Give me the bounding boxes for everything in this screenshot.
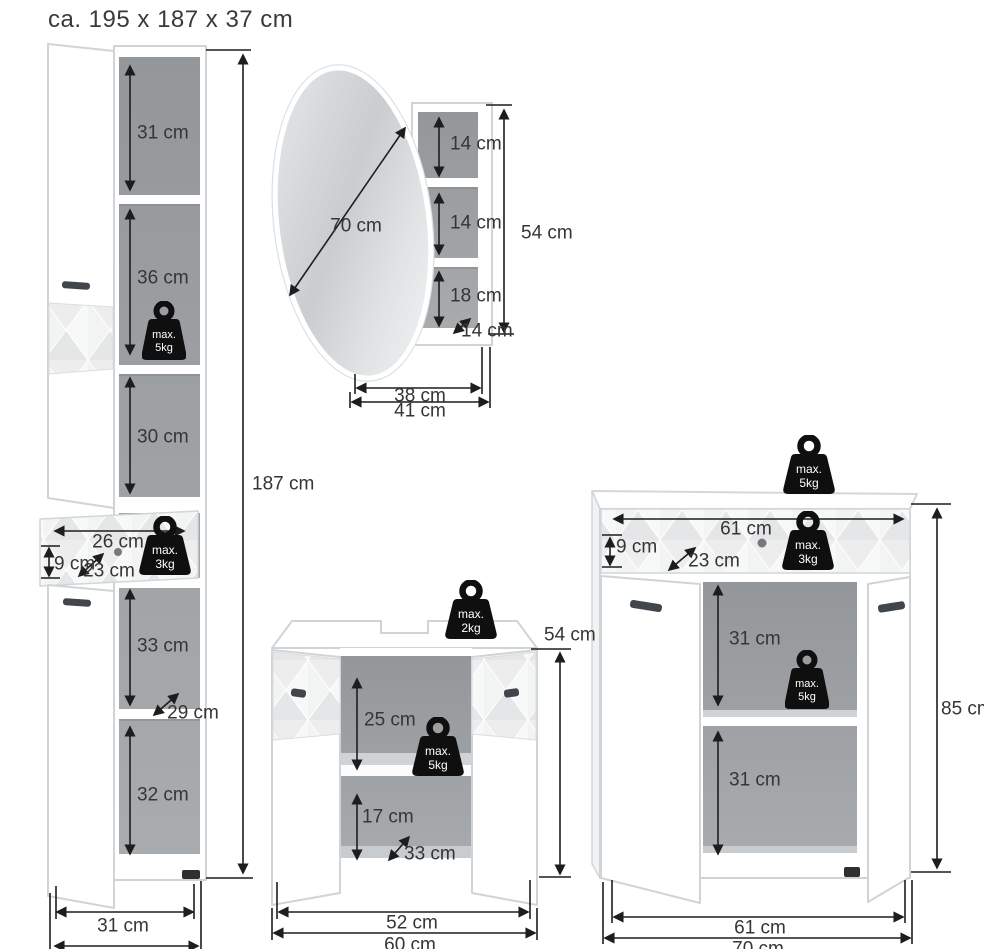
- weight-limit-value: 5kg: [142, 343, 186, 354]
- weight-capacity-badge: max. 5kg: [142, 301, 186, 363]
- overall-dimensions-title: ca. 195 x 187 x 37 cm: [48, 6, 293, 34]
- basin-compartment-label: 17 cm: [362, 808, 414, 827]
- tall-second-compartment-label: 36 cm: [137, 269, 189, 288]
- mirror-diameter-label: 70 cm: [330, 217, 382, 236]
- chest-height-label: 85 cm: [941, 700, 984, 719]
- tall-cabinet-illustration: [40, 44, 206, 908]
- weight-limit-value: 3kg: [780, 553, 836, 565]
- tall-shelf-depth-label: 29 cm: [167, 704, 219, 723]
- chest-lower-compartment-label: 31 cm: [729, 771, 781, 790]
- tall-width-label: 31 cm: [97, 917, 149, 936]
- weight-capacity-badge: max. 3kg: [780, 511, 836, 573]
- mirror-middle-shelf-label: 14 cm: [450, 214, 502, 233]
- tall-drawer-depth-label: 23 cm: [83, 562, 135, 581]
- chest-overall-width-label: 70 cm: [732, 940, 784, 949]
- basin-clearance-label: 25 cm: [364, 711, 416, 730]
- mirror-top-shelf-label: 14 cm: [450, 135, 502, 154]
- weight-limit-label: max.: [142, 330, 186, 341]
- weight-capacity-badge: max. 5kg: [785, 650, 829, 712]
- weight-limit-value: 5kg: [781, 477, 837, 489]
- tall-third-compartment-label: 33 cm: [137, 637, 189, 656]
- chest-body-width-label: 61 cm: [734, 919, 786, 938]
- weight-capacity-badge: max. 2kg: [443, 580, 499, 642]
- weight-limit-label: max.: [785, 679, 829, 690]
- weight-limit-value: 5kg: [785, 692, 829, 703]
- weight-capacity-badge: max. 5kg: [410, 717, 466, 779]
- tall-height-label: 187 cm: [252, 475, 314, 494]
- mirror-height-label: 54 cm: [521, 224, 573, 243]
- weight-limit-value: 2kg: [443, 622, 499, 634]
- chest-drawer-height-label: 9 cm: [616, 538, 657, 557]
- weight-limit-label: max.: [137, 544, 193, 556]
- weight-limit-label: max.: [780, 539, 836, 551]
- tall-open-shelf-label: 30 cm: [137, 428, 189, 447]
- mirror-overall-width-label: 41 cm: [394, 402, 446, 421]
- basin-height-label: 54 cm: [544, 626, 596, 645]
- chest-drawer-depth-label: 23 cm: [688, 552, 740, 571]
- basin-depth-label: 33 cm: [404, 845, 456, 864]
- tall-bottom-compartment-label: 32 cm: [137, 786, 189, 805]
- basin-body-width-label: 52 cm: [386, 914, 438, 933]
- product-dimension-diagram: ca. 195 x 187 x 37 cm 31 cm 36 cm 30 cm …: [0, 0, 984, 949]
- weight-limit-label: max.: [443, 608, 499, 620]
- weight-limit-value: 3kg: [137, 558, 193, 570]
- mirror-bottom-shelf-label: 18 cm: [450, 287, 502, 306]
- tall-top-compartment-label: 31 cm: [137, 124, 189, 143]
- weight-capacity-badge: max. 3kg: [137, 516, 193, 578]
- weight-limit-label: max.: [410, 745, 466, 757]
- mirror-depth-label: 14 cm: [461, 322, 513, 341]
- weight-limit-label: max.: [781, 463, 837, 475]
- chest-upper-compartment-label: 31 cm: [729, 630, 781, 649]
- basin-overall-width-label: 60 cm: [384, 936, 436, 949]
- chest-drawer-width-label: 61 cm: [720, 520, 772, 539]
- weight-capacity-badge: max. 5kg: [781, 435, 837, 497]
- weight-limit-value: 5kg: [410, 759, 466, 771]
